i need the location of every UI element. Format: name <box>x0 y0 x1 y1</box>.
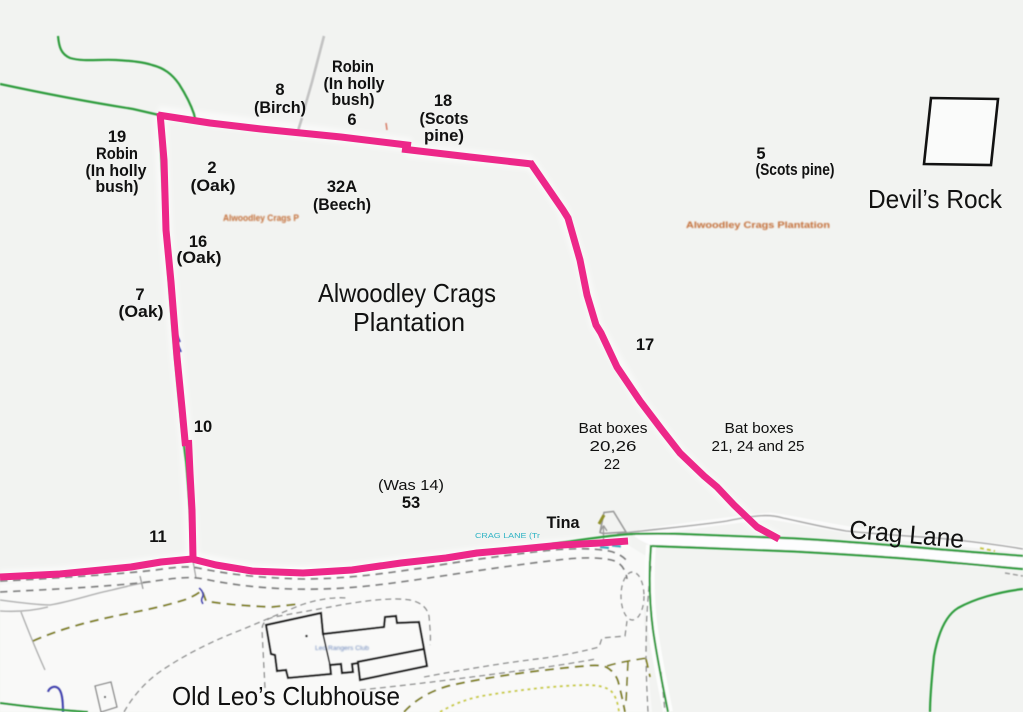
svg-text:bush): bush) <box>96 178 139 196</box>
svg-text:Bat boxes: Bat boxes <box>579 421 648 437</box>
svg-text:17: 17 <box>636 336 654 354</box>
svg-text:6: 6 <box>347 111 356 129</box>
svg-text:7: 7 <box>135 286 144 304</box>
svg-text:bush): bush) <box>332 91 375 109</box>
svg-text:Bat boxes: Bat boxes <box>725 421 794 437</box>
svg-text:Alwoodley Crags Plantation: Alwoodley Crags Plantation <box>686 220 830 231</box>
svg-text:Alwoodley Crags: Alwoodley Crags <box>318 278 496 308</box>
svg-text:(Scots pine): (Scots pine) <box>756 161 835 179</box>
svg-text:2: 2 <box>207 159 216 177</box>
svg-text:Devil’s Rock: Devil’s Rock <box>868 184 1003 214</box>
svg-text:pine): pine) <box>424 127 464 145</box>
svg-text:19: 19 <box>108 128 126 146</box>
svg-text:(Scots: (Scots <box>420 110 469 128</box>
svg-text:53: 53 <box>402 494 420 512</box>
svg-text:(Beech): (Beech) <box>313 196 371 214</box>
svg-text:21, 24 and 25: 21, 24 and 25 <box>712 439 805 455</box>
svg-text:11: 11 <box>149 528 166 546</box>
svg-text:(Was 14): (Was 14) <box>378 478 444 494</box>
svg-text:Robin: Robin <box>332 58 374 76</box>
svg-text:(Oak): (Oak) <box>177 249 222 267</box>
svg-text:(Oak): (Oak) <box>119 303 164 321</box>
svg-text:20,26: 20,26 <box>590 439 637 455</box>
svg-text:18: 18 <box>434 92 452 110</box>
svg-text:Alwoodley Crags P: Alwoodley Crags P <box>223 213 299 223</box>
svg-text:CRAG LANE (Tr: CRAG LANE (Tr <box>475 533 541 540</box>
svg-text:22: 22 <box>604 457 620 473</box>
svg-text:Old Leo’s Clubhouse: Old Leo’s Clubhouse <box>172 681 400 711</box>
svg-text:Robin: Robin <box>96 145 138 163</box>
svg-text:8: 8 <box>275 81 284 99</box>
svg-text:32A: 32A <box>327 178 357 196</box>
svg-text:(Oak): (Oak) <box>191 177 236 195</box>
svg-text:(Birch): (Birch) <box>254 99 306 117</box>
svg-text:Leo Rangers Club: Leo Rangers Club <box>315 646 370 652</box>
svg-text:Tina: Tina <box>547 514 581 532</box>
svg-text:Plantation: Plantation <box>353 307 465 337</box>
svg-text:10: 10 <box>194 418 212 436</box>
